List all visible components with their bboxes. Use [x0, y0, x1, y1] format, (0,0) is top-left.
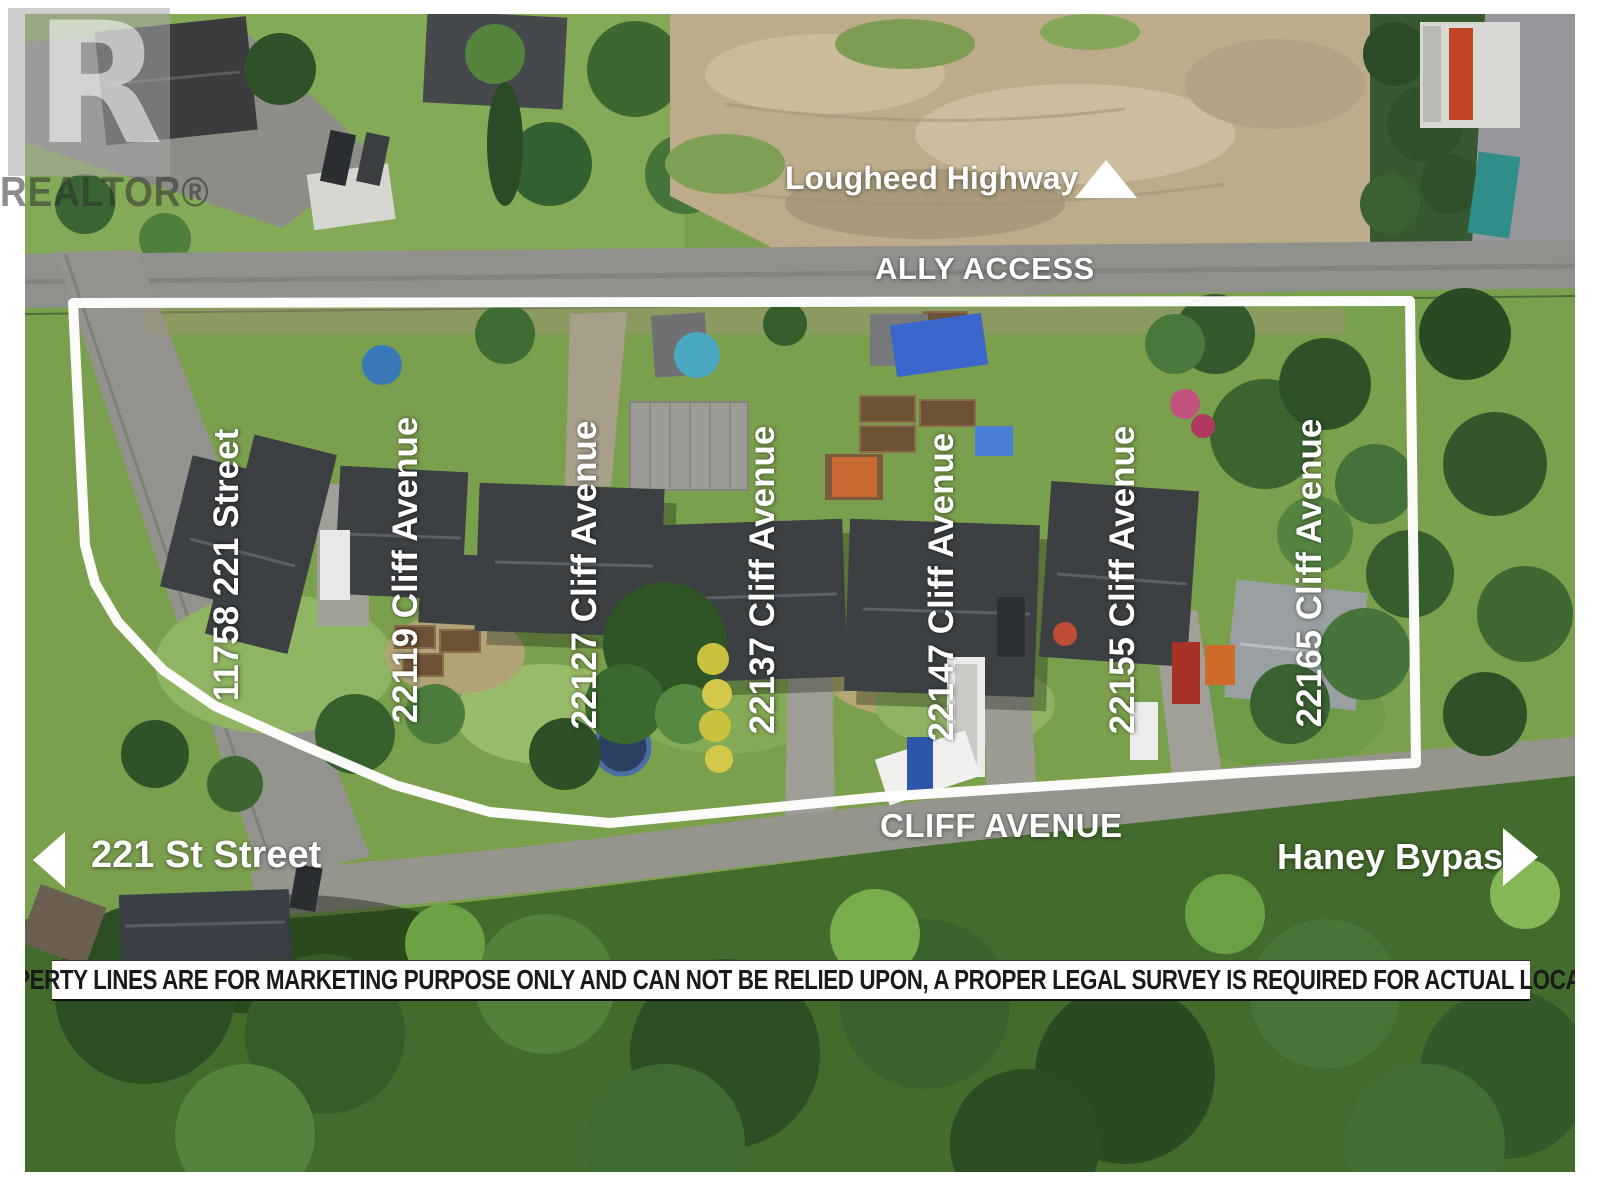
address-label-22119-cliff-avenue: 22119 Cliff Avenue [386, 417, 426, 724]
left-arrow-icon [33, 832, 65, 888]
address-label-22137-cliff-avenue: 22137 Cliff Avenue [743, 426, 783, 735]
label-lougheed-highway: Lougheed Highway [785, 160, 1078, 197]
address-label-22147-cliff-avenue: 22147 Cliff Avenue [922, 433, 962, 742]
address-label-22165-cliff-avenue: 22165 Cliff Avenue [1290, 419, 1330, 728]
address-label-11758-221-street: 11758 221 Street [207, 429, 247, 701]
north-arrow-icon [1075, 160, 1137, 198]
disclaimer-bar: **PROPERTY LINES ARE FOR MARKETING PURPO… [52, 960, 1530, 1001]
label-haney-bypass: Haney Bypass [1277, 836, 1523, 878]
disclaimer-text: **PROPERTY LINES ARE FOR MARKETING PURPO… [25, 964, 1575, 996]
label-cliff-avenue: CLIFF AVENUE [880, 807, 1123, 845]
label-221-st-street: 221 St Street [91, 834, 321, 877]
right-arrow-icon [1503, 828, 1538, 886]
aerial-photo: Lougheed Highway ALLY ACCESS CLIFF AVENU… [25, 14, 1575, 1172]
address-label-22155-cliff-avenue: 22155 Cliff Avenue [1103, 426, 1143, 735]
address-label-22127-cliff-avenue: 22127 Cliff Avenue [565, 421, 605, 730]
label-ally-access: ALLY ACCESS [875, 251, 1095, 287]
